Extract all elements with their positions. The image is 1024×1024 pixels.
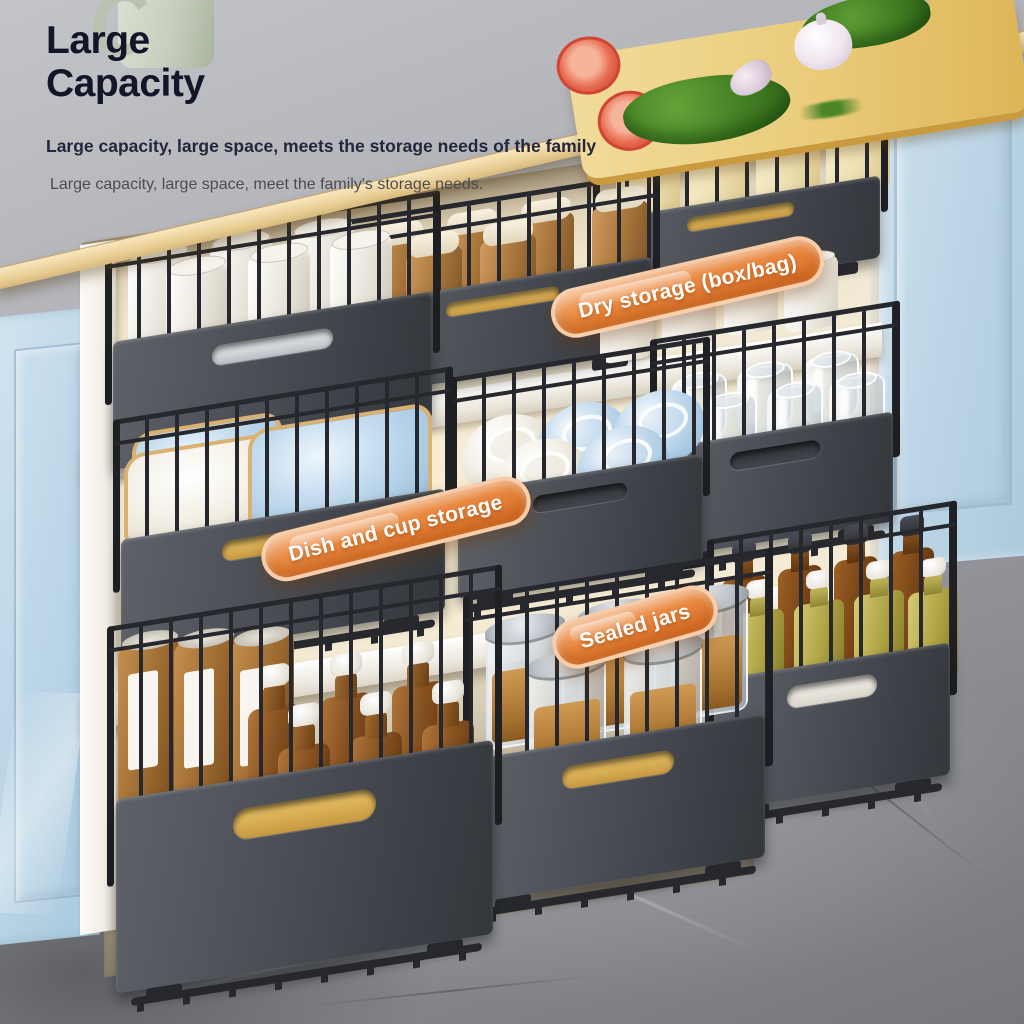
page-title: Large Capacity — [46, 20, 205, 106]
product-image: Dry storage (box/bag) Dish and cup stora… — [0, 0, 1024, 1024]
basket-handle-cutout — [730, 439, 819, 471]
basket-bowls — [455, 345, 705, 600]
basket-handle-cutout — [212, 327, 333, 367]
herb-scraps — [786, 94, 877, 124]
basket-handle-cutout — [533, 481, 626, 513]
basket-bottles — [112, 573, 497, 994]
basket-handle-cutout — [233, 787, 376, 841]
basket-handle-cutout — [687, 201, 793, 232]
description: Large capacity, large space, meet the fa… — [50, 176, 483, 194]
subtitle: Large capacity, large space, meets the s… — [46, 136, 596, 157]
basket-handle-cutout — [787, 673, 876, 708]
basket-handle-cutout — [562, 749, 674, 790]
basket-handle-cutout — [446, 285, 560, 318]
